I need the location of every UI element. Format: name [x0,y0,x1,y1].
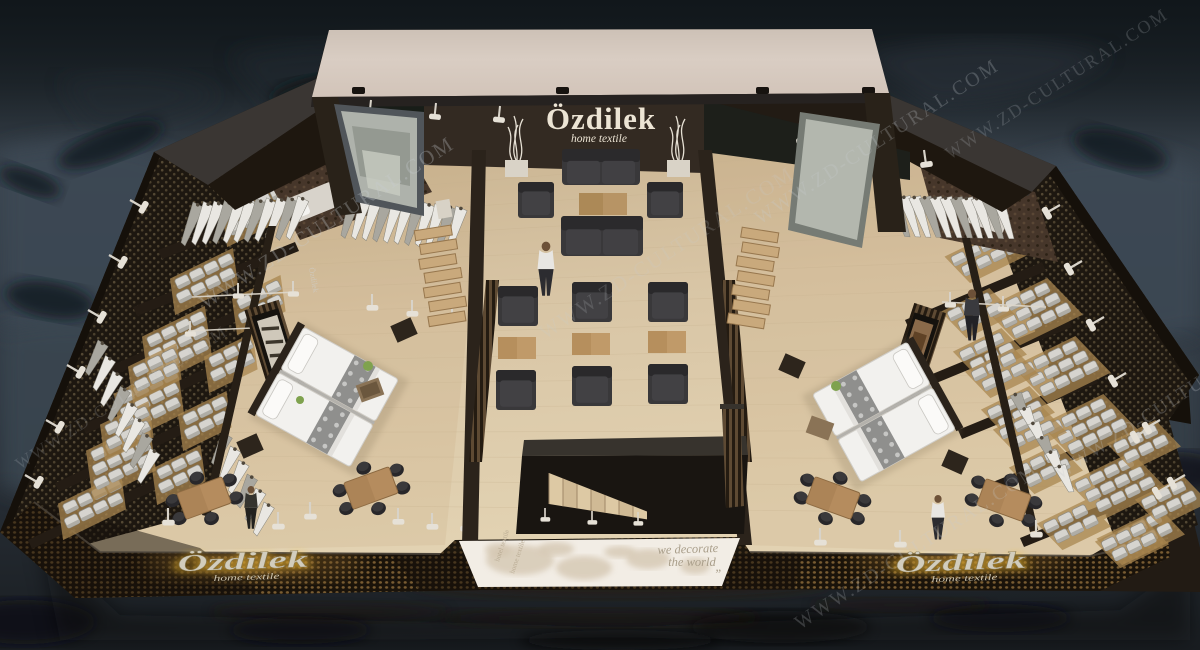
svg-text:Özdilek: Özdilek [546,101,656,136]
svg-text:the world: the world [668,555,716,569]
svg-text:”: ” [714,566,721,581]
svg-text:home textile: home textile [571,133,627,145]
